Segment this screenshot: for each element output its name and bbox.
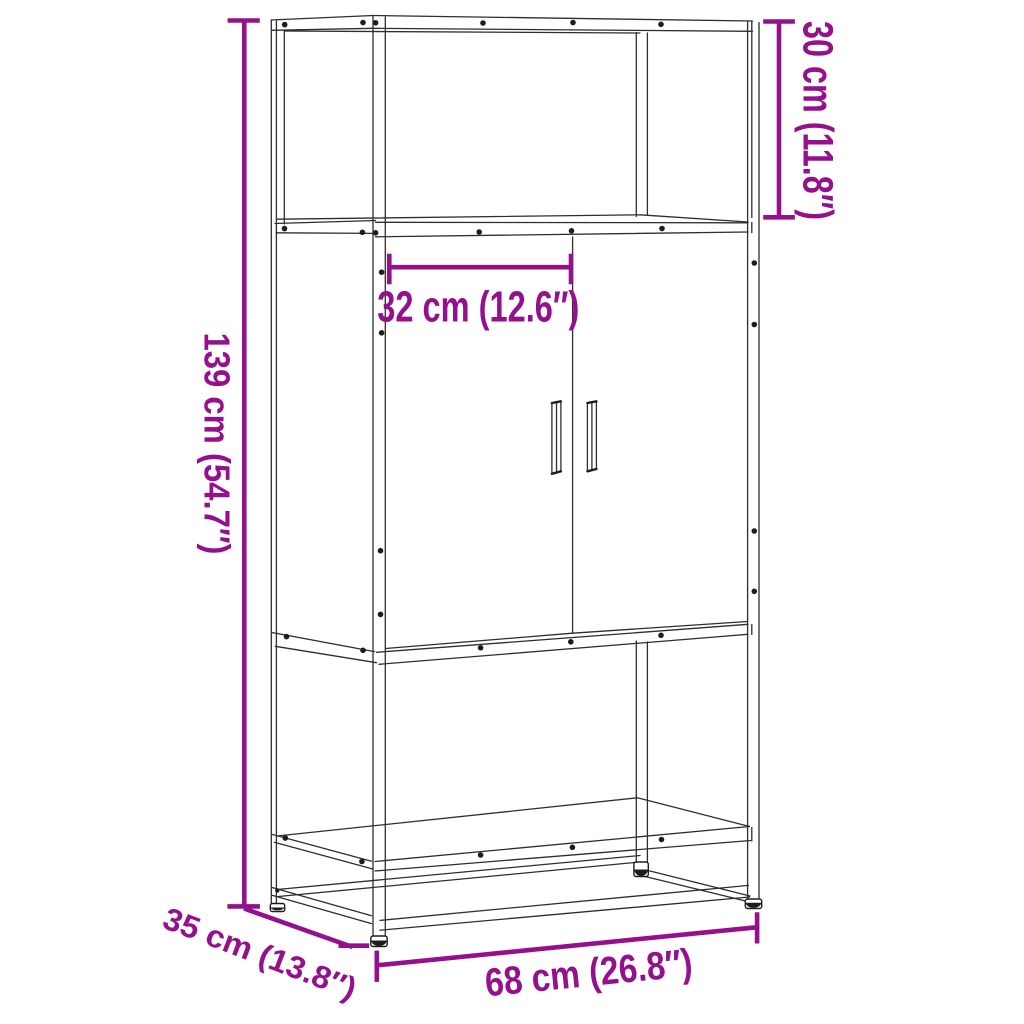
svg-text:30 cm (11.8″): 30 cm (11.8″) — [794, 21, 842, 220]
svg-text:139 cm (54.7″): 139 cm (54.7″) — [197, 333, 238, 555]
svg-text:32 cm (12.6″): 32 cm (12.6″) — [377, 283, 579, 332]
